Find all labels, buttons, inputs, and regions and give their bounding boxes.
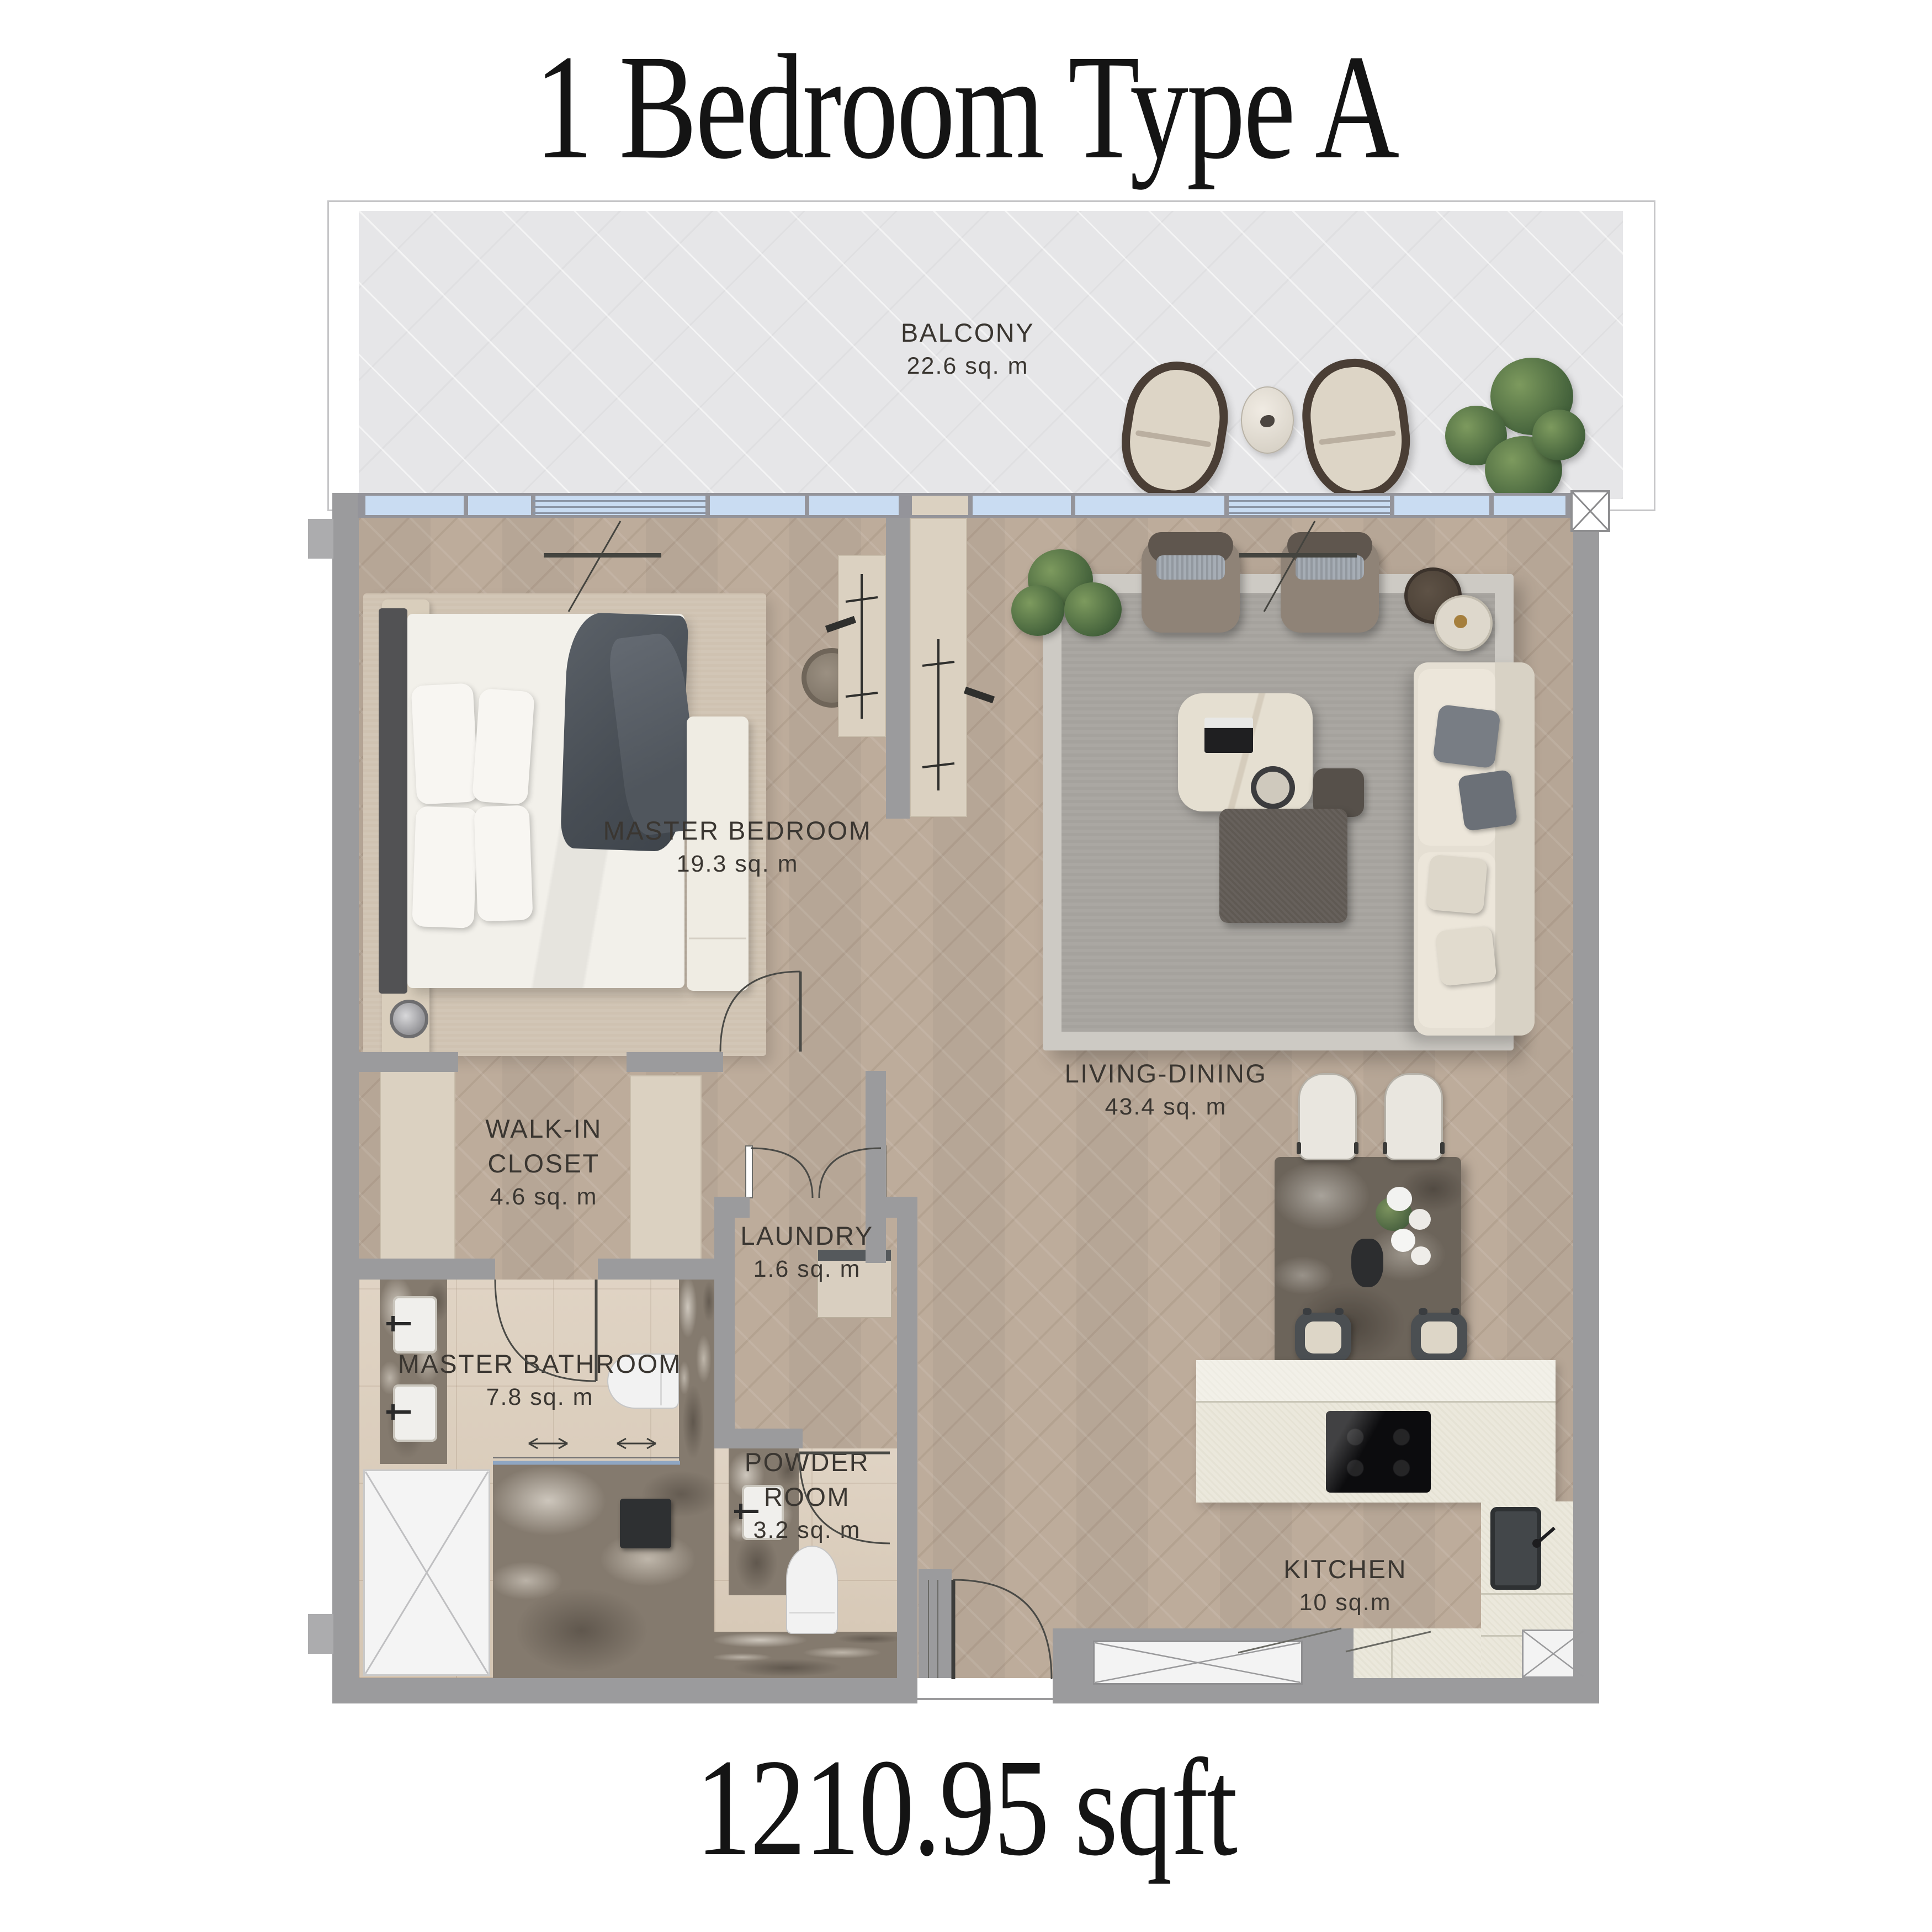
wall-entry-block [919, 1569, 952, 1678]
walk-in-closet-label: WALK-IN CLOSET 4.6 sq. m [485, 1112, 602, 1213]
structural-pier [1570, 490, 1610, 532]
wall-tab [308, 519, 333, 559]
sofa-back [1495, 662, 1535, 1036]
wardrobe-top [912, 496, 968, 515]
room-area: 3.2 sq. m [745, 1515, 870, 1547]
window-mullion [1224, 496, 1229, 515]
cooktop [1326, 1411, 1431, 1493]
powder-room-label: POWDER ROOM 3.2 sq. m [745, 1445, 870, 1547]
sofa [1414, 662, 1535, 1036]
armchair-cushion [1156, 555, 1225, 580]
armchair [1142, 540, 1240, 633]
room-area: 1.6 sq. m [740, 1254, 873, 1286]
sliding-door-panel [1225, 496, 1390, 515]
bar-stool [1295, 1313, 1351, 1362]
wall-tab [308, 1614, 333, 1654]
total-area: 1210.95 sqft [0, 1738, 1932, 1877]
bed-pillow [472, 688, 535, 805]
master-bedroom-label: MASTER BEDROOM 19.3 sq. m [603, 814, 872, 880]
bed-pillow [474, 805, 533, 921]
room-name: MASTER BEDROOM [603, 814, 872, 848]
floor-plan-page: 1 Bedroom Type A [0, 0, 1932, 1932]
room-area: 19.3 sq. m [603, 848, 872, 880]
room-area: 7.8 sq. m [398, 1382, 682, 1414]
bar-stool-seat [1305, 1321, 1341, 1354]
sofa-pillow-cream [1435, 926, 1497, 986]
coffee-table-book [1204, 718, 1253, 753]
page-title: 1 Bedroom Type A [0, 32, 1932, 182]
wall-closet-bath-left [359, 1259, 495, 1280]
bed-headboard [379, 608, 407, 994]
floor-cushion [1219, 809, 1347, 923]
sofa-pillow-cream [1426, 854, 1488, 915]
armchair-cushion [1296, 555, 1365, 580]
wall-laundry-left [714, 1211, 735, 1448]
closet-column [380, 1069, 455, 1262]
vanity-sink [393, 1296, 437, 1354]
wall-right [1573, 493, 1599, 1703]
shower-tray [363, 1469, 490, 1676]
wall-bottom-left [332, 1678, 917, 1703]
sink-faucet [1532, 1539, 1541, 1548]
window-band [358, 493, 1573, 518]
room-area: 10 sq.m [1283, 1587, 1407, 1619]
powder-marble-strip [714, 1632, 897, 1678]
room-name: WALK-IN [485, 1112, 602, 1147]
hall-wardrobe [910, 518, 967, 817]
wall-closet-stub-left [359, 1052, 458, 1072]
wall-closet-bath-right [598, 1259, 723, 1280]
laundry-door-panel [745, 1145, 753, 1198]
window-frame [358, 496, 365, 515]
bedroom-wardrobe [838, 555, 886, 737]
room-name: MASTER BATHROOM [398, 1347, 682, 1382]
room-name: CLOSET [485, 1147, 602, 1181]
window-mullion [968, 496, 973, 515]
bar-stool-seat [1421, 1321, 1457, 1354]
dining-chair [1298, 1073, 1357, 1160]
window-mullion [805, 496, 809, 515]
room-name: LAUNDRY [740, 1219, 873, 1254]
wall-pier [899, 496, 912, 515]
shower-stool [620, 1499, 671, 1548]
kitchen-label: KITCHEN 10 sq.m [1283, 1552, 1407, 1619]
wall-bedroom-living [886, 518, 910, 819]
powder-toilet [786, 1546, 838, 1634]
closet-column [630, 1075, 702, 1263]
master-bathroom-label: MASTER BATHROOM 7.8 sq. m [398, 1347, 682, 1414]
room-area: 4.6 sq. m [485, 1181, 602, 1213]
room-name: KITCHEN [1283, 1552, 1407, 1587]
bar-stool [1411, 1313, 1467, 1362]
wall-laundry-cap-left [714, 1197, 750, 1218]
living-dining-label: LIVING-DINING 43.4 sq. m [1065, 1057, 1267, 1123]
balcony-label: BALCONY 22.6 sq. m [901, 316, 1034, 383]
armchair [1281, 540, 1379, 633]
room-area: 43.4 sq. m [1065, 1091, 1267, 1123]
room-name: BALCONY [901, 316, 1034, 351]
bed-pillow [411, 683, 479, 805]
lounge-cushion-crease [1318, 431, 1396, 445]
sofa-pillow-gray [1458, 769, 1518, 831]
sofa-pillow-gray [1432, 704, 1501, 769]
window-mullion [1489, 496, 1494, 515]
lounge-cushion-crease [1135, 430, 1211, 447]
room-name: ROOM [745, 1480, 870, 1515]
kitchen-sink [1490, 1507, 1541, 1590]
window-mullion [464, 496, 468, 515]
marble-wall-panel [679, 1273, 714, 1464]
page-title-text: 1 Bedroom Type A [534, 32, 1398, 182]
storage-niche [1093, 1641, 1303, 1685]
room-area: 22.6 sq. m [901, 351, 1034, 383]
table-lamp [390, 1000, 428, 1038]
coffee-table-decor [1251, 766, 1295, 809]
window-mullion [1390, 496, 1394, 515]
room-name: POWDER [745, 1445, 870, 1480]
window-mullion [1071, 496, 1075, 515]
laundry-label: LAUNDRY 1.6 sq. m [740, 1219, 873, 1286]
dining-chair [1384, 1073, 1443, 1160]
wall-closet-stub-right [627, 1052, 723, 1072]
wall-bottom-right [1354, 1678, 1599, 1703]
sliding-door-panel [533, 496, 705, 515]
side-table-bowl [1454, 615, 1467, 628]
room-name: LIVING-DINING [1065, 1057, 1267, 1091]
bed-pillow [412, 806, 478, 928]
wall-left [332, 493, 359, 1703]
total-area-text: 1210.95 sqft [696, 1738, 1236, 1877]
bathroom-wet-area [493, 1462, 714, 1678]
window-mullion [705, 496, 710, 515]
wall-entry [897, 1197, 917, 1703]
